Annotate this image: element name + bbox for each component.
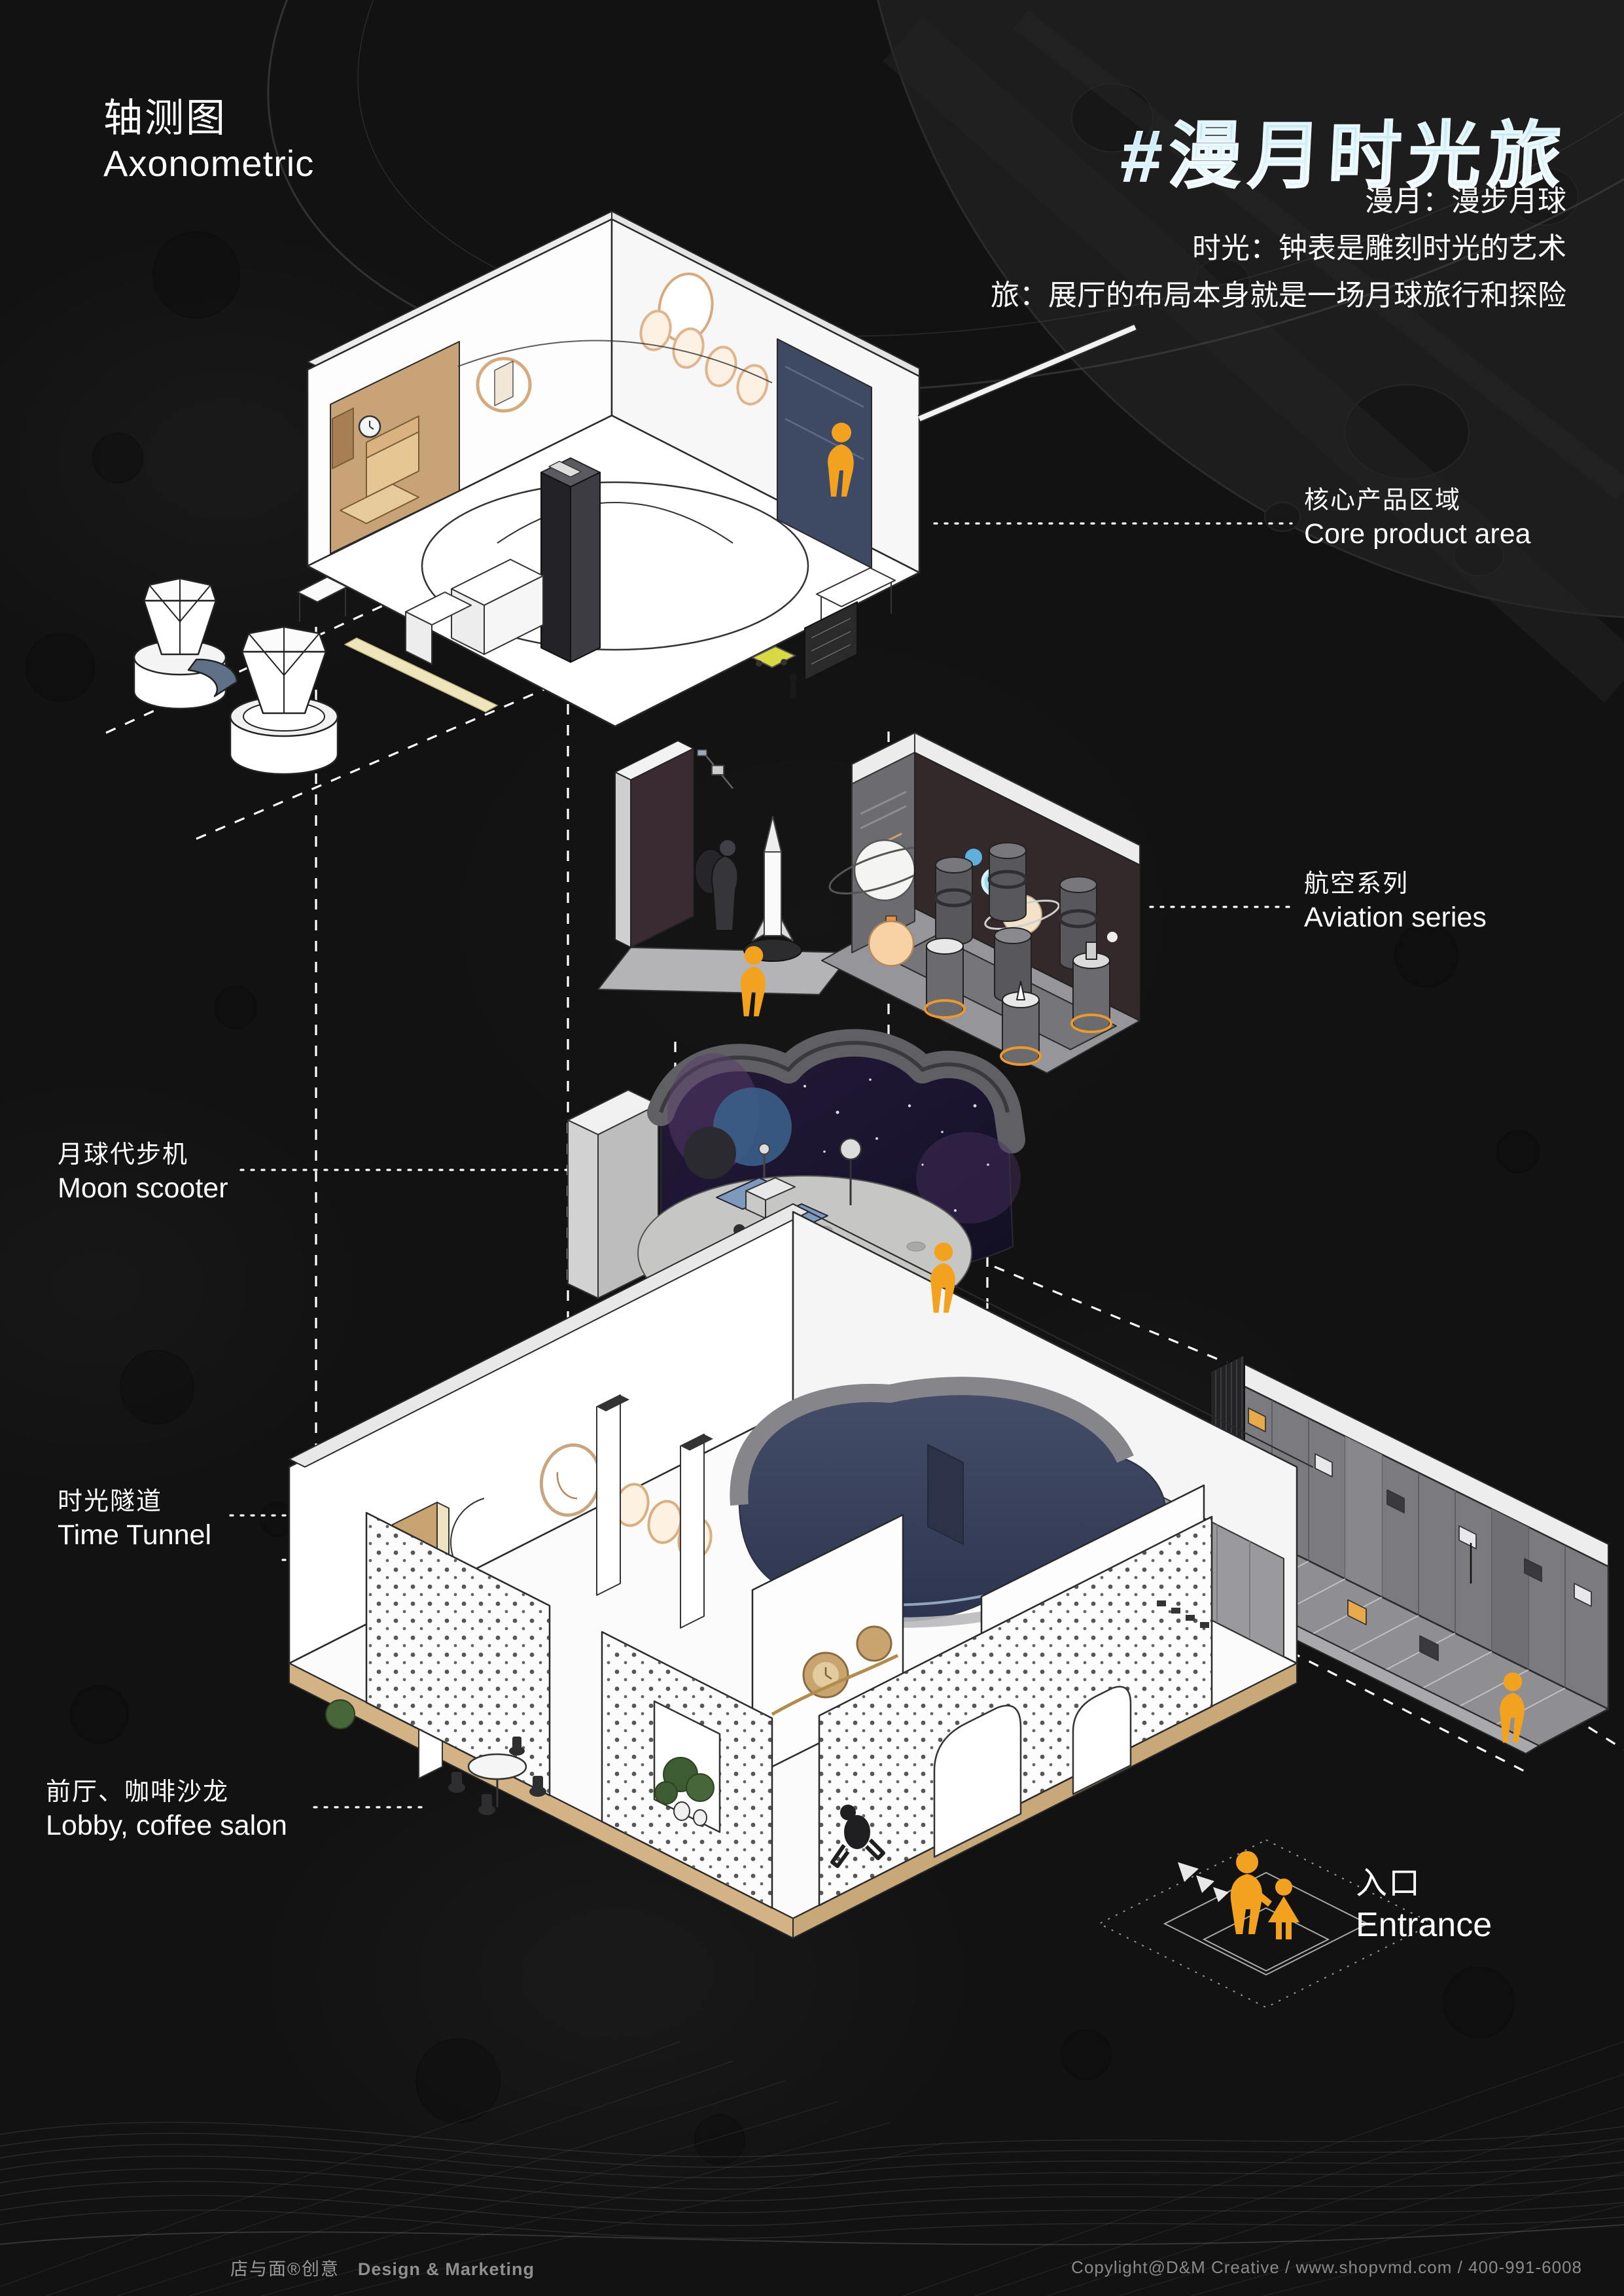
scooter-unit xyxy=(230,627,338,774)
label-core-product-cn: 核心产品区域 xyxy=(1304,486,1531,516)
label-lobby-cn: 前厅、咖啡沙龙 xyxy=(46,1777,287,1807)
family-icon xyxy=(1231,1851,1299,1939)
poster: 轴测图 Axonometric #漫月时光旅 漫月：漫步月球 时光：钟表是雕刻时… xyxy=(0,0,1624,2296)
label-entrance-cn: 入口 xyxy=(1356,1865,1492,1903)
label-lobby-coffee-salon: 前厅、咖啡沙龙 Lobby, coffee salon xyxy=(46,1777,287,1843)
scooter-unit xyxy=(134,578,237,709)
label-time-tunnel-cn: 时光隧道 xyxy=(58,1487,211,1517)
label-core-product-en: Core product area xyxy=(1304,517,1531,551)
section-title: 轴测图 Axonometric xyxy=(103,96,314,185)
label-aviation-cn: 航空系列 xyxy=(1304,869,1487,899)
aviation-room xyxy=(598,733,1140,1073)
label-entrance: 入口 Entrance xyxy=(1356,1865,1492,1946)
label-entrance-en: Entrance xyxy=(1356,1905,1492,1946)
lobby-floor xyxy=(289,1204,1313,1938)
moon-scooter-machines xyxy=(134,578,338,774)
footer-copyright: Copylight@D&M Creative / www.shopvmd.com… xyxy=(1071,2257,1582,2278)
footer-brand: 店与面®创意Design & Marketing xyxy=(230,2255,535,2280)
label-moon-scooter-en: Moon scooter xyxy=(58,1171,228,1205)
label-time-tunnel-en: Time Tunnel xyxy=(58,1518,211,1552)
brand-logo-text: 店与面®创意 xyxy=(230,2259,340,2279)
label-core-product-area: 核心产品区域 Core product area xyxy=(1304,486,1531,552)
label-moon-scooter: 月球代步机 Moon scooter xyxy=(58,1140,228,1206)
brand-tagline: Design & Marketing xyxy=(358,2259,535,2279)
label-time-tunnel: 时光隧道 Time Tunnel xyxy=(58,1487,211,1553)
subtitle-line: 旅：展厅的布局本身就是一场月球旅行和探险 xyxy=(991,272,1566,319)
direction-arrows-icon xyxy=(1178,1862,1229,1902)
label-aviation-en: Aviation series xyxy=(1304,900,1487,934)
section-title-cn: 轴测图 xyxy=(103,96,314,142)
label-aviation-series: 航空系列 Aviation series xyxy=(1304,869,1487,935)
section-title-en: Axonometric xyxy=(103,142,314,185)
axonometric-artwork xyxy=(0,0,1624,2296)
subtitle-line: 漫月：漫步月球 xyxy=(991,178,1566,225)
subtitle-line: 时光：钟表是雕刻时光的艺术 xyxy=(991,225,1566,272)
label-moon-scooter-cn: 月球代步机 xyxy=(58,1140,228,1170)
label-lobby-en: Lobby, coffee salon xyxy=(46,1809,287,1843)
subtitle-lines: 漫月：漫步月球 时光：钟表是雕刻时光的艺术 旅：展厅的布局本身就是一场月球旅行和… xyxy=(991,178,1566,319)
